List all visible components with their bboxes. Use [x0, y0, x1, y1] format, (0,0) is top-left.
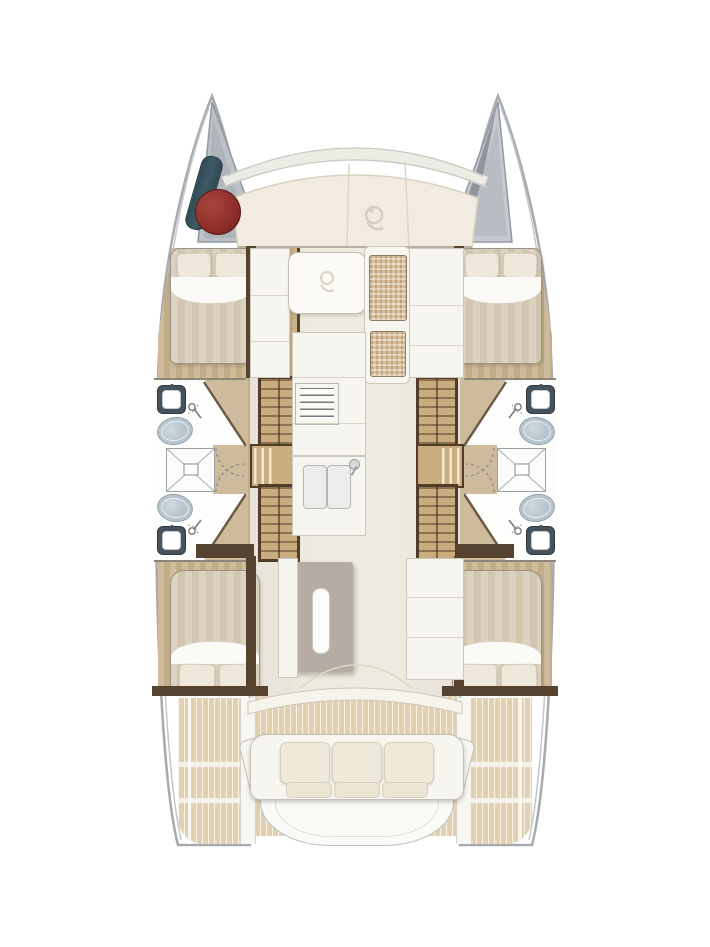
galley-island: [293, 562, 353, 672]
starboard-stairs-forward: [416, 376, 458, 450]
sofa-seat-cushion: [334, 782, 380, 798]
starboard-stairs-landing: [416, 444, 464, 488]
panel-seam: [293, 377, 365, 378]
pillow: [465, 252, 500, 278]
bow-buoy: [195, 189, 241, 235]
port-head-fwd-diagonal-wall: [204, 382, 246, 446]
starboard-aft-toilet-lid: [521, 496, 552, 521]
port-heads-block: [154, 378, 246, 562]
cockpit-deck-starboard: [470, 698, 532, 844]
foredeck-lounge: [232, 175, 478, 248]
brand-logo-table: [316, 269, 338, 295]
landing-treads: [442, 448, 460, 484]
pillow: [177, 252, 212, 278]
panel-seam: [409, 305, 463, 306]
starboard-fwd-shower-mixer-icon: [505, 402, 523, 422]
salon-table: [288, 252, 366, 314]
starboard-deck-plank-seam: [519, 698, 522, 844]
salon-starboard-sideboard: [408, 248, 464, 378]
starboard-fwd-sink-tap: [539, 384, 543, 388]
stair-rail: [278, 379, 280, 447]
duvet-fold: [459, 277, 541, 304]
starboard-shower-pan-lines: [498, 449, 545, 491]
starboard-shower-stall: [497, 448, 546, 492]
starboard-fwd-toilet-lid: [521, 419, 552, 444]
starboard-heads-block: [464, 378, 556, 562]
panel-seam: [407, 637, 463, 638]
duvet-fold: [171, 277, 253, 304]
galley-sink-basin-left: [303, 465, 327, 509]
sofa-seat-cushion: [286, 782, 332, 798]
salon-dinette-bench: [364, 246, 410, 384]
starboard-head-fwd-door-swing: [466, 448, 494, 476]
landing-treads: [254, 448, 272, 484]
port-deck-plank-seam: [188, 698, 191, 844]
starboard-aft-shower-mixer-icon: [505, 516, 523, 536]
dinette-bench-cushion-fwd: [369, 255, 407, 321]
starboard-deck-step-seam: [470, 798, 532, 803]
starboard-forward-berth: [458, 248, 542, 364]
starboard-aft-berth: [452, 570, 542, 692]
catamaran-floor-plan: [0, 0, 710, 947]
port-aft-sink-tap: [170, 525, 174, 529]
cockpit-sofa: [250, 734, 462, 806]
stair-rail: [278, 487, 280, 559]
port-fwd-head-sink: [157, 385, 186, 414]
port-aft-sink-basin: [162, 531, 181, 550]
port-forward-berth: [170, 248, 254, 364]
starboard-aft-head-sink: [526, 526, 555, 555]
starboard-aft-sink-basin: [531, 531, 550, 550]
starboard-stairs-aft: [416, 484, 458, 562]
panel-seam: [409, 345, 463, 346]
sofa-back-cushion: [332, 742, 382, 784]
port-fwd-sink-basin: [162, 390, 181, 409]
galley-counter: [292, 332, 366, 456]
duvet-fold: [453, 641, 541, 664]
port-head-fwd-door-swing: [216, 448, 244, 476]
starboard-aft-cabin-fwd-wall: [456, 544, 514, 558]
starboard-fwd-sink-basin: [531, 390, 550, 409]
port-fwd-toilet-lid: [159, 419, 190, 444]
port-aft-cabinet: [278, 558, 298, 678]
starboard-galley-cabinets: [406, 558, 464, 680]
port-fwd-sink-tap: [170, 384, 174, 388]
sofa-seat-cushion: [382, 782, 428, 798]
starboard-aft-sink-tap: [539, 525, 543, 529]
salon-port-sideboard: [250, 248, 290, 378]
sofa-back-cushion: [384, 742, 434, 784]
starboard-head-aft-door-swing: [466, 464, 494, 492]
port-aft-shower-mixer-icon: [187, 516, 205, 536]
pillow: [215, 252, 250, 278]
port-aft-head-sink: [157, 526, 186, 555]
port-aft-bulkhead: [152, 686, 268, 696]
transom-step: [275, 801, 439, 837]
sofa-back-cushion: [280, 742, 330, 784]
galley-sink-unit: [292, 456, 366, 536]
pillow: [503, 252, 538, 278]
starboard-fwd-head-sink: [526, 385, 555, 414]
galley-sink-basin-right: [327, 465, 351, 509]
starboard-head-fwd-diagonal-wall: [464, 382, 506, 446]
port-shower-stall: [166, 448, 215, 492]
port-aft-cabin-fwd-wall: [196, 544, 254, 558]
starboard-aft-bulkhead: [442, 686, 558, 696]
port-shower-pan-lines: [167, 449, 214, 491]
port-aft-toilet-lid: [159, 496, 190, 521]
island-handle: [312, 588, 330, 654]
starboard-deck-step-seam: [470, 762, 532, 767]
panel-seam: [251, 341, 289, 342]
stair-rail: [436, 379, 438, 447]
port-head-aft-door-swing: [216, 464, 244, 492]
stair-rail: [436, 487, 438, 559]
panel-seam: [251, 295, 289, 296]
port-stairs-landing: [250, 444, 298, 488]
galley-stove: [295, 383, 339, 425]
panel-seam: [407, 597, 463, 598]
port-inner-wall-aft: [246, 556, 256, 696]
port-fwd-shower-mixer-icon: [187, 402, 205, 422]
dinette-bench-cushion-aft: [370, 331, 406, 377]
